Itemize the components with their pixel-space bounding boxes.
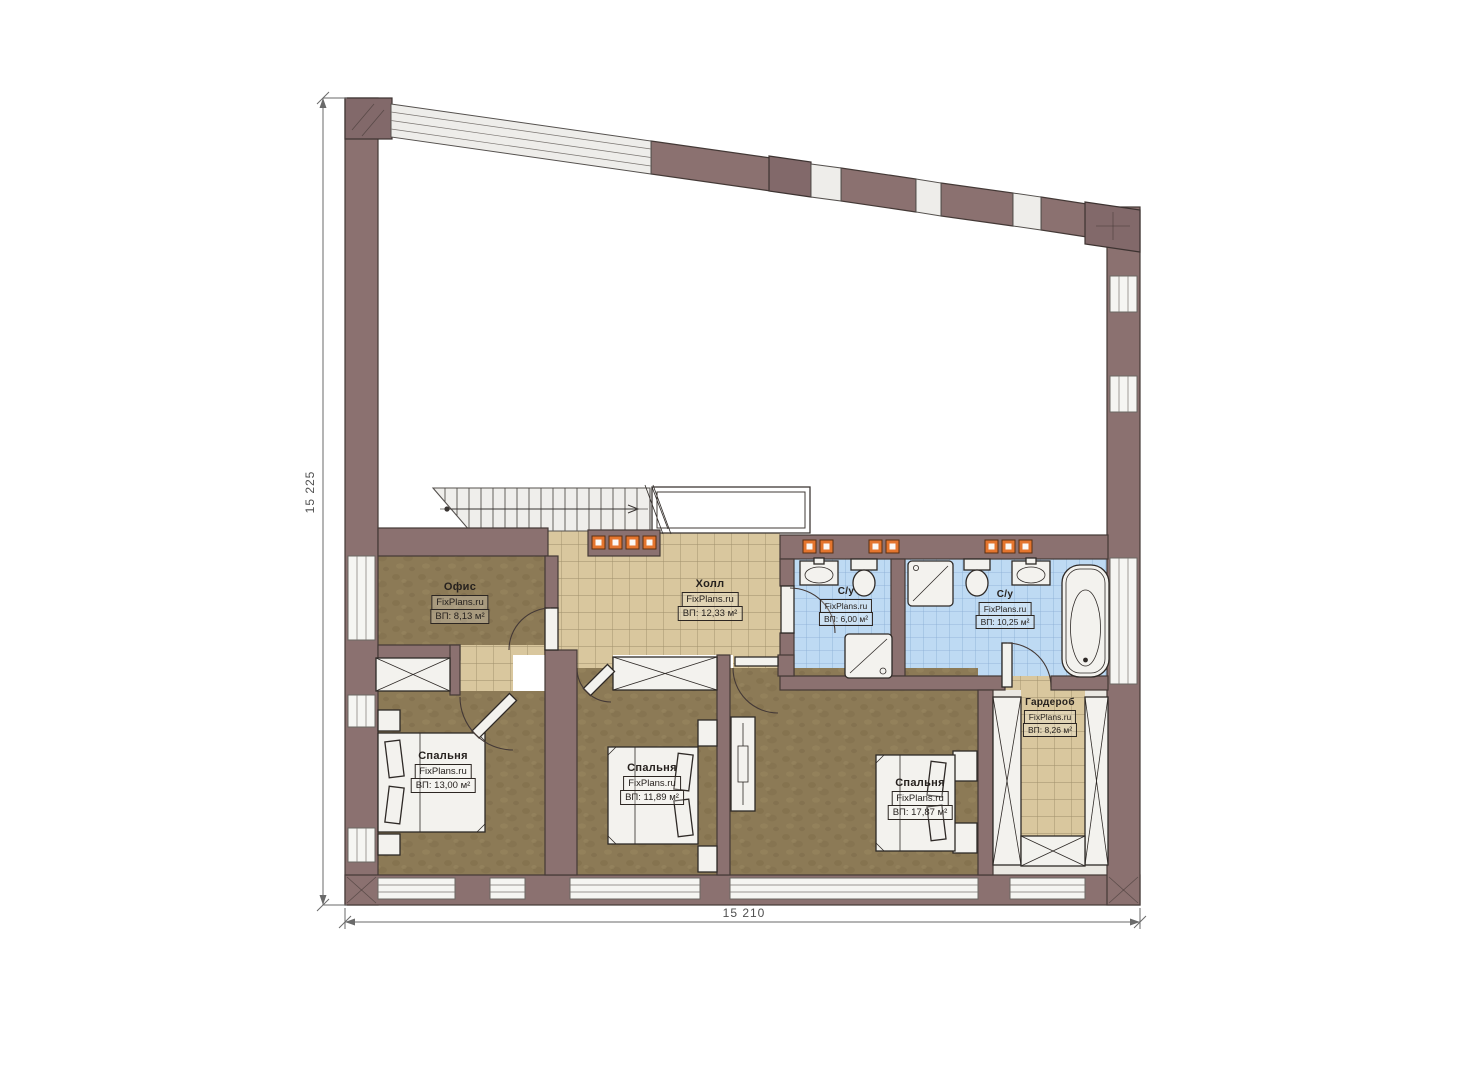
stair-railing xyxy=(652,487,810,533)
radiator-bathroom2 xyxy=(985,540,1032,553)
window-bottom-3 xyxy=(570,878,700,899)
room-name: С/у xyxy=(997,589,1013,600)
room-label-bedroom-3: Спальня FixPlans.ru ВП: 17,87 м² xyxy=(888,777,953,820)
roof-window-2 xyxy=(916,179,941,216)
bedroom2-bedroom3-wall xyxy=(717,655,730,875)
nightstand xyxy=(953,751,977,781)
nightstand xyxy=(953,823,977,853)
room-area: ВП: 11,89 м² xyxy=(620,790,684,805)
wall-left xyxy=(345,98,378,905)
nightstand xyxy=(698,720,717,746)
window-right-bathroom xyxy=(1110,558,1137,684)
room-name: Офис xyxy=(444,581,476,593)
closet-bedroom2 xyxy=(613,657,717,690)
closet-bedroom1 xyxy=(376,658,450,691)
roof-glazing-band xyxy=(391,104,651,174)
room-area: ВП: 6,00 м² xyxy=(819,612,873,626)
window-bottom-4 xyxy=(730,878,978,899)
shower-tray xyxy=(845,634,892,678)
room-label-wardrobe: Гардероб FixPlans.ru ВП: 8,26 м² xyxy=(1023,697,1077,737)
nightstand xyxy=(378,834,400,855)
room-label-bathroom-2: С/у FixPlans.ru ВП: 10,25 м² xyxy=(976,589,1035,629)
room-area: ВП: 8,26 м² xyxy=(1023,723,1077,737)
room-label-bedroom-1: Спальня FixPlans.ru ВП: 13,00 м² xyxy=(411,750,476,793)
bathrooms-divider-wall xyxy=(891,559,905,676)
window-left-bedroom1-a xyxy=(348,695,375,727)
window-right-upper-1 xyxy=(1110,276,1137,312)
nightstand xyxy=(378,710,400,731)
dimension-bottom-label: 15 210 xyxy=(723,906,766,920)
room-name: Спальня xyxy=(895,777,945,789)
sink xyxy=(1012,558,1050,585)
wardrobe-cabinet-bottom xyxy=(1021,836,1085,866)
wardrobe-cabinet-left xyxy=(993,697,1021,865)
room-name: Спальня xyxy=(418,750,468,762)
bedroom3-wardrobe-wall xyxy=(978,690,993,875)
room-area: ВП: 12,33 м² xyxy=(678,606,743,621)
window-left-office xyxy=(348,556,375,640)
room-area: ВП: 13,00 м² xyxy=(411,778,476,793)
wall-top-corner-column xyxy=(345,98,392,139)
wardrobe-cabinet-right xyxy=(1085,697,1108,865)
floor-plan-page: Офис FixPlans.ru ВП: 8,13 м² Холл FixPla… xyxy=(0,0,1473,1080)
room-area: ВП: 17,87 м² xyxy=(888,805,953,820)
roof-window-3 xyxy=(1013,193,1041,230)
bedroom1-bedroom2-wall xyxy=(545,650,577,875)
room-area: ВП: 8,13 м² xyxy=(430,609,489,624)
roof-window-1 xyxy=(811,164,841,201)
room-label-hall: Холл FixPlans.ru ВП: 12,33 м² xyxy=(678,578,743,621)
dimension-left-label: 15 225 xyxy=(303,471,317,514)
staircase xyxy=(433,485,671,534)
room-name: С/у xyxy=(838,586,854,597)
nightstand xyxy=(698,846,717,872)
room-name: Гардероб xyxy=(1025,697,1075,708)
room-area: ВП: 10,25 м² xyxy=(976,615,1035,629)
room-label-bathroom-1: С/у FixPlans.ru ВП: 6,00 м² xyxy=(819,586,873,626)
bathtub xyxy=(1062,565,1109,677)
window-left-bedroom1-b xyxy=(348,828,375,862)
sink xyxy=(800,558,838,585)
wall-top-right-corner xyxy=(1085,202,1140,252)
room-name: Холл xyxy=(696,578,725,590)
window-bottom-2 xyxy=(490,878,525,899)
shelf-unit-bedroom3 xyxy=(731,717,755,811)
shower-tray xyxy=(908,561,953,606)
window-bottom-5 xyxy=(1010,878,1085,899)
window-bottom-1 xyxy=(378,878,455,899)
room-label-office: Офис FixPlans.ru ВП: 8,13 м² xyxy=(430,581,489,624)
room-label-bedroom-2: Спальня FixPlans.ru ВП: 11,89 м² xyxy=(620,762,684,805)
room-name: Спальня xyxy=(627,762,677,774)
window-right-upper-2 xyxy=(1110,376,1137,412)
